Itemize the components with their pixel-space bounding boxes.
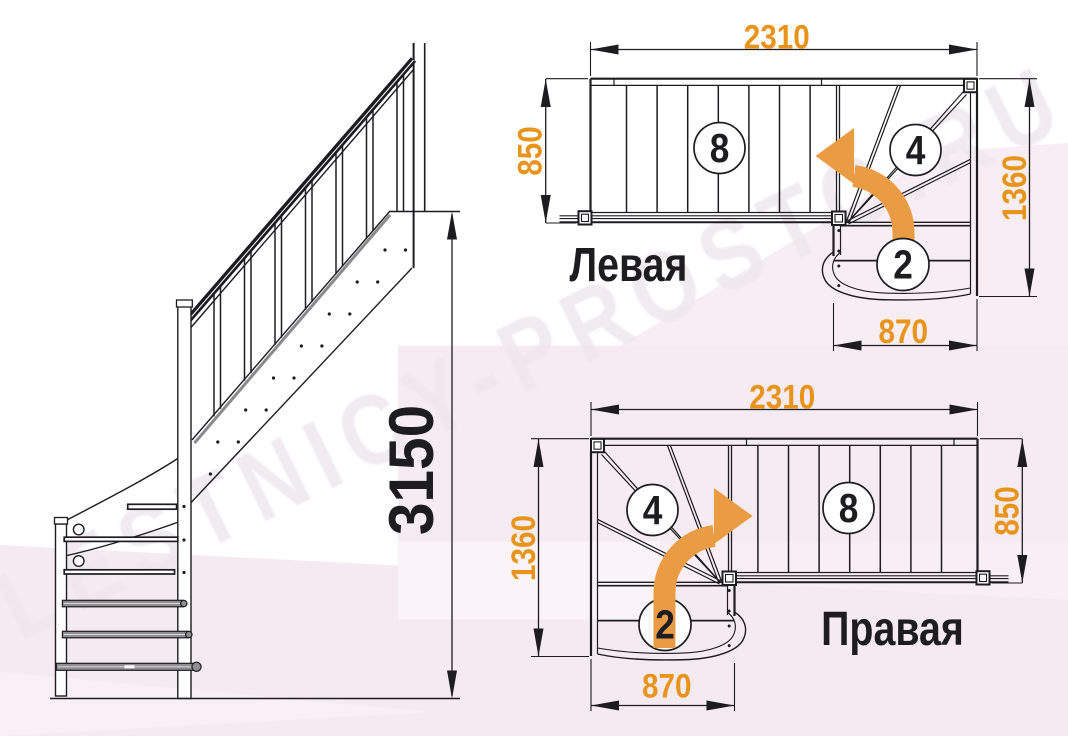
svg-text:1360: 1360 bbox=[504, 515, 543, 581]
svg-text:4: 4 bbox=[906, 128, 926, 174]
svg-text:2: 2 bbox=[655, 602, 675, 648]
svg-text:1360: 1360 bbox=[995, 155, 1034, 221]
svg-text:Левая: Левая bbox=[569, 238, 687, 292]
svg-text:2: 2 bbox=[893, 242, 913, 288]
svg-text:870: 870 bbox=[879, 312, 928, 351]
svg-text:850: 850 bbox=[511, 126, 550, 175]
svg-text:2310: 2310 bbox=[744, 17, 810, 56]
svg-text:8: 8 bbox=[839, 486, 859, 532]
svg-text:3150: 3150 bbox=[376, 405, 446, 535]
svg-text:2310: 2310 bbox=[749, 377, 815, 416]
svg-text:850: 850 bbox=[987, 486, 1026, 535]
svg-text:870: 870 bbox=[642, 666, 691, 705]
svg-text:Правая: Правая bbox=[821, 602, 964, 656]
svg-text:4: 4 bbox=[643, 488, 663, 534]
svg-text:8: 8 bbox=[710, 126, 730, 172]
